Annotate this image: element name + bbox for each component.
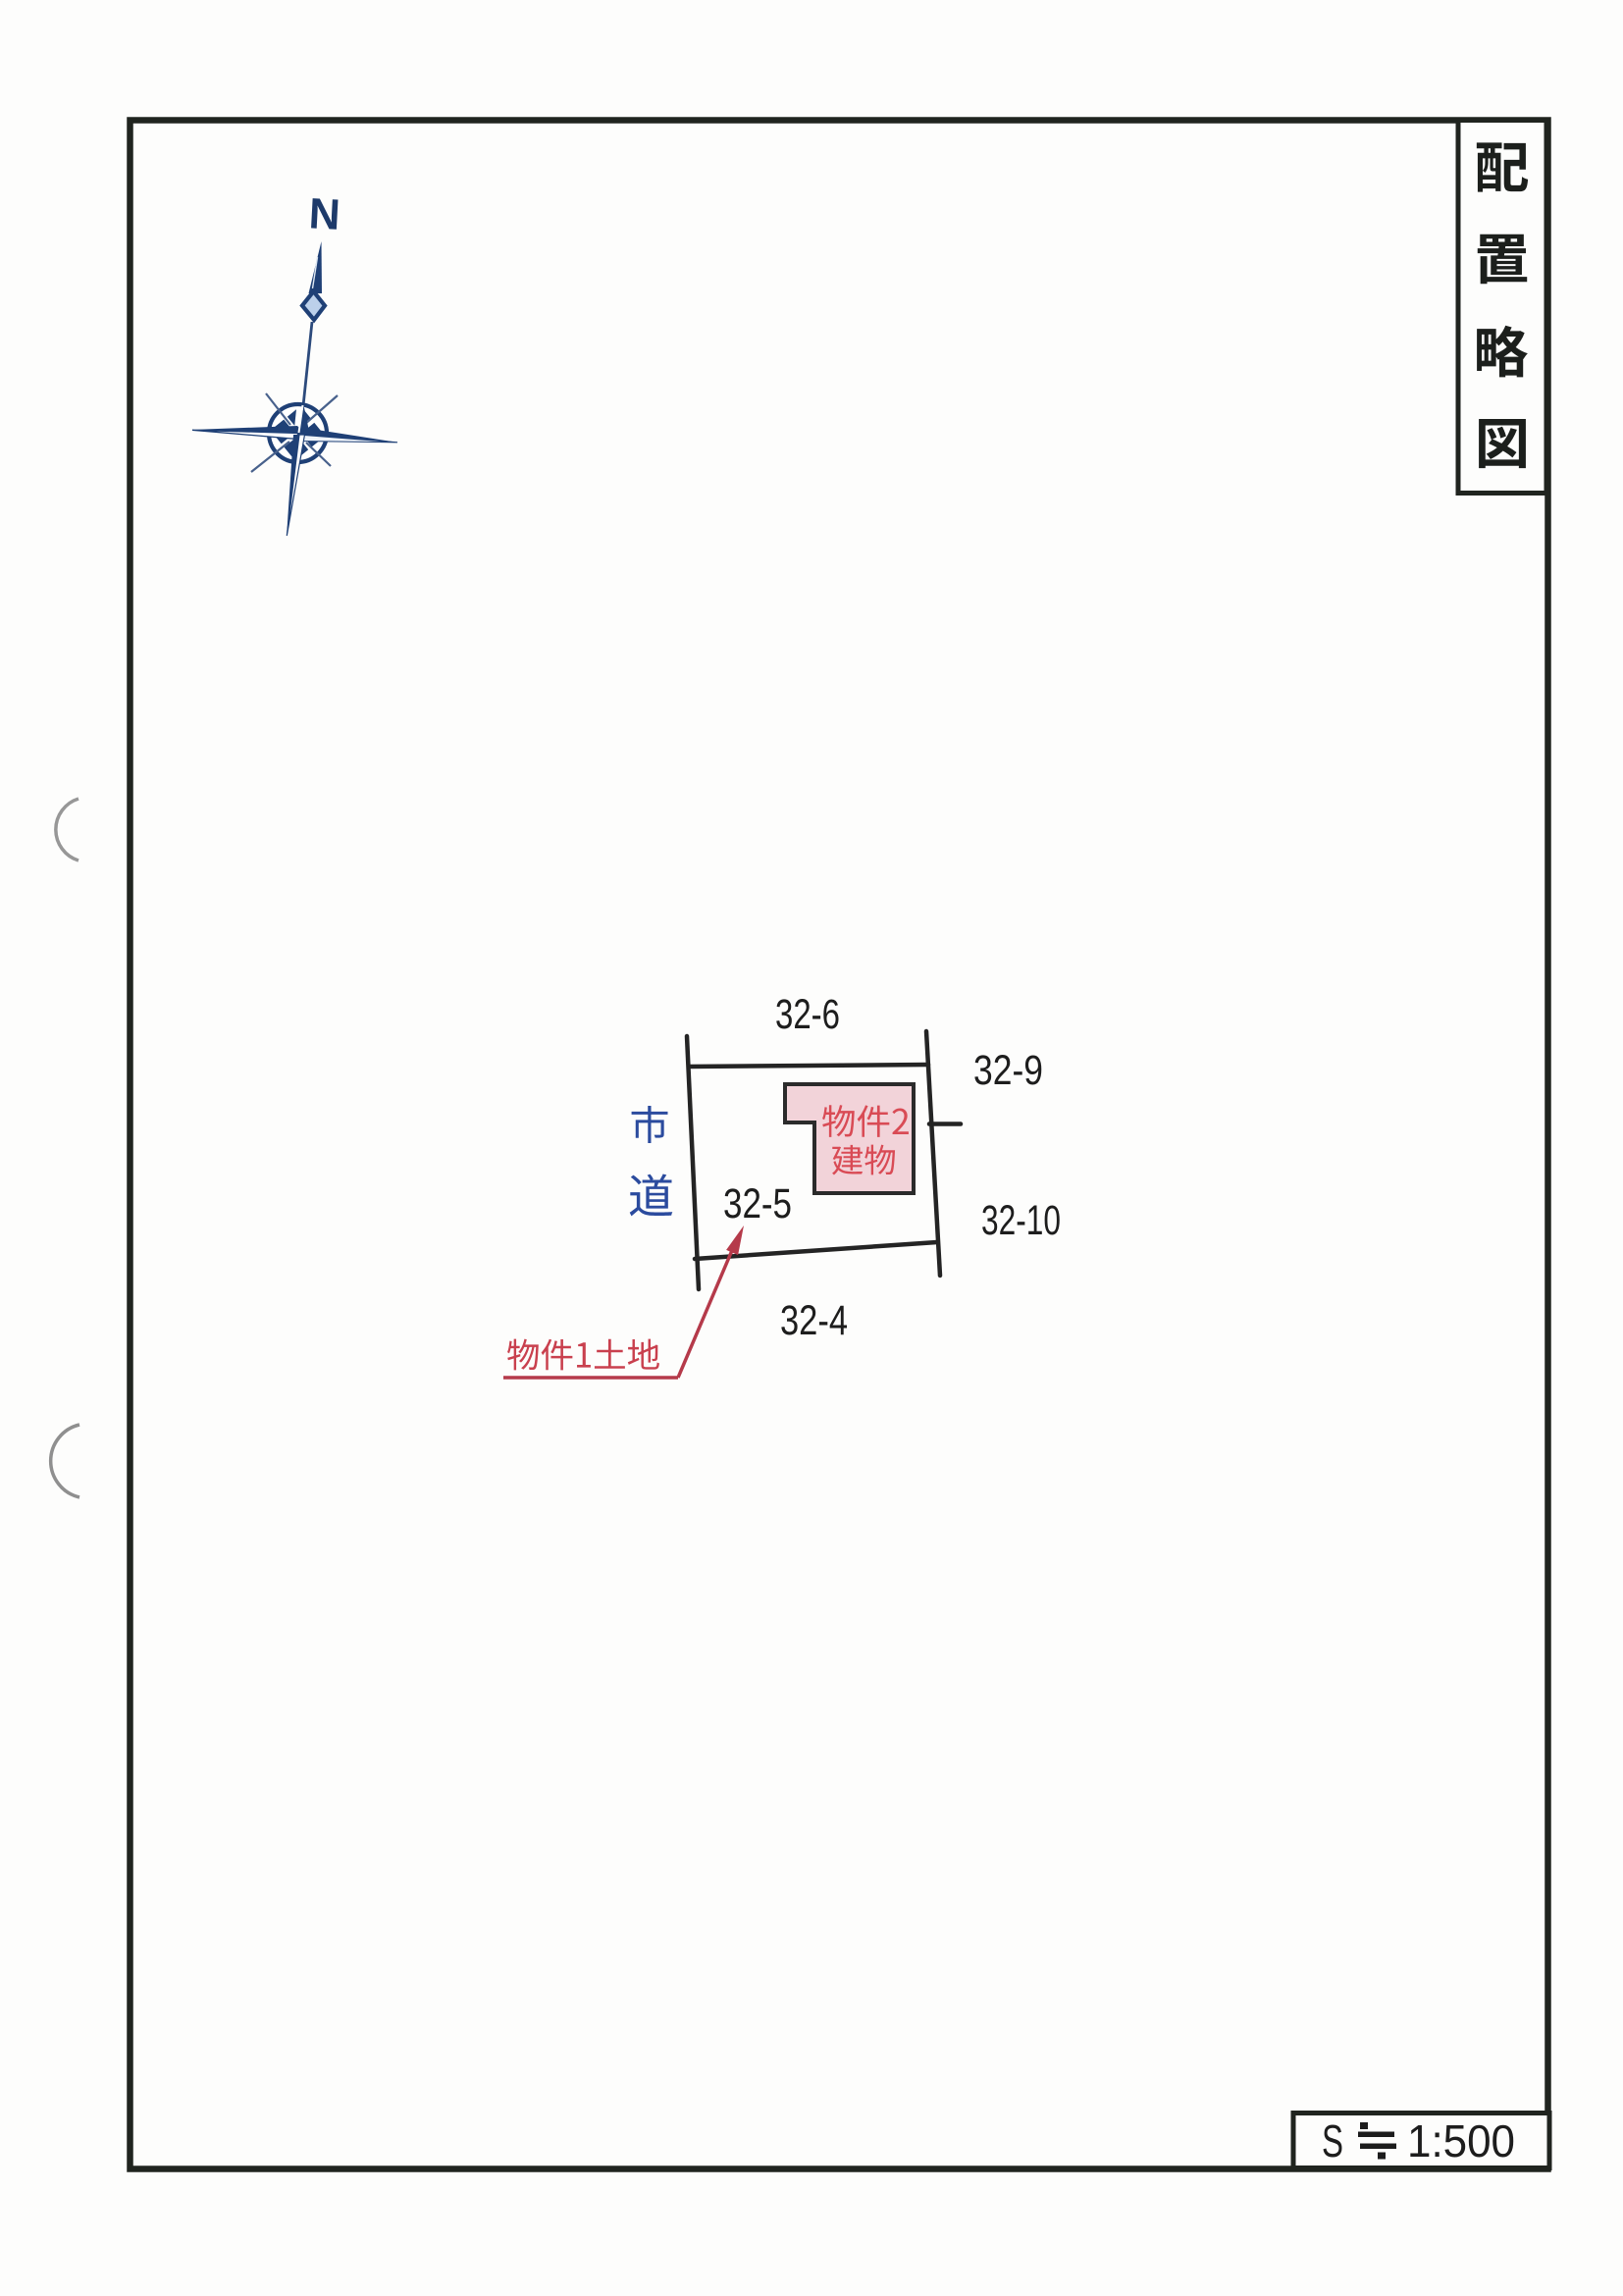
svg-text:32-6: 32-6 (775, 991, 840, 1038)
svg-text:S: S (1322, 2115, 1343, 2166)
svg-text:32-9: 32-9 (973, 1047, 1043, 1094)
svg-text:32-10: 32-10 (981, 1197, 1061, 1244)
svg-text:1:500: 1:500 (1407, 2115, 1515, 2166)
svg-text:32-4: 32-4 (780, 1297, 848, 1344)
svg-text:32-5: 32-5 (723, 1180, 792, 1227)
svg-text:N: N (308, 189, 341, 239)
